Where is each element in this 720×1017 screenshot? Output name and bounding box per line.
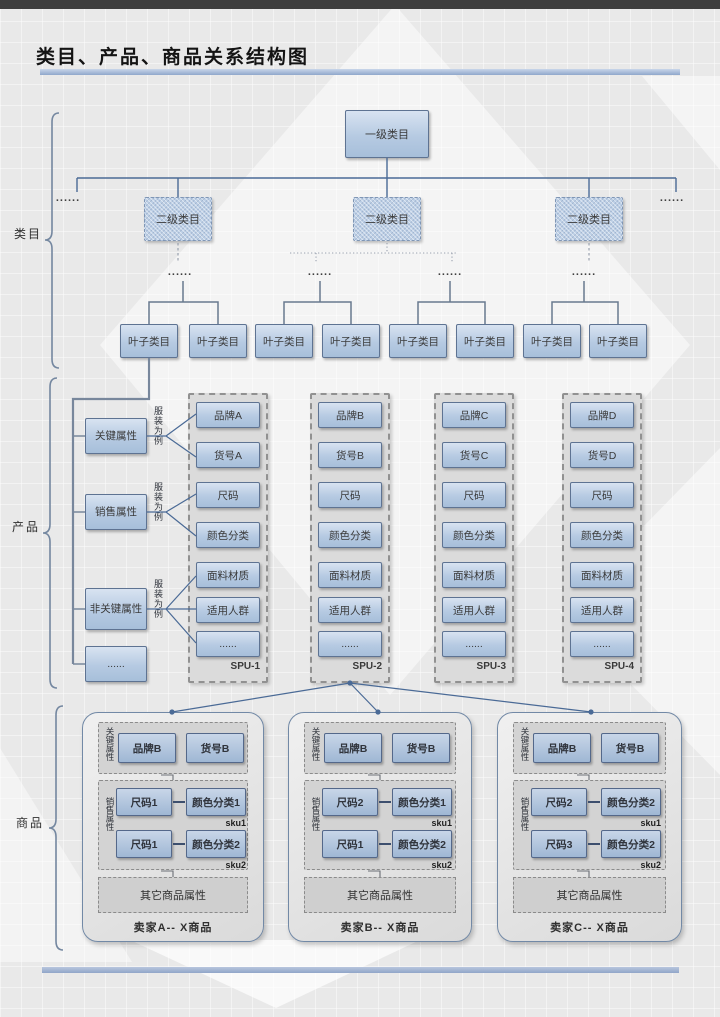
spu-attribute-box: 适用人群: [570, 597, 634, 623]
spu-name-label: SPU-3: [434, 661, 506, 672]
spu-attribute-box: ......: [318, 631, 382, 657]
spu-name-label: SPU-1: [188, 661, 260, 672]
seller-other-attrs-box: 其它商品属性: [98, 877, 248, 913]
leaf-category-box: 叶子类目: [456, 324, 514, 358]
bottom-bar: [42, 967, 679, 973]
leaf-category-box: 叶子类目: [389, 324, 447, 358]
spu-attribute-box: 货号D: [570, 442, 634, 468]
level2-category-box: 二级类目: [555, 197, 623, 241]
sku-color-box: 颜色分类2: [601, 788, 661, 816]
spu-name-label: SPU-2: [310, 661, 382, 672]
seller-sales-attrs-label: 销售属性: [308, 797, 320, 853]
seller-name-label: 卖家C-- X商品: [497, 919, 682, 935]
spu-attribute-box: 适用人群: [442, 597, 506, 623]
spu-attribute-box: 面料材质: [196, 562, 260, 588]
sku-size-box: 尺码3: [531, 830, 587, 858]
ellipsis-label: ......: [650, 192, 694, 204]
spu-attribute-box: ......: [442, 631, 506, 657]
sku-color-box: 颜色分类1: [392, 788, 452, 816]
spu-attribute-box: 货号C: [442, 442, 506, 468]
key-attributes-box: 关键属性: [85, 418, 147, 454]
item-number-box: 货号B: [186, 733, 244, 763]
sku-size-box: 尺码1: [116, 830, 172, 858]
seller-sales-attrs-label: 销售属性: [102, 797, 114, 853]
leaf-category-box: 叶子类目: [589, 324, 647, 358]
section-label-commodity: 商品: [16, 814, 44, 831]
sku-tag: sku2: [182, 860, 246, 870]
sku-tag: sku2: [597, 860, 661, 870]
sku-tag: sku1: [388, 818, 452, 828]
sku-link-dash: [588, 801, 600, 803]
top-bar: [0, 0, 720, 9]
leaf-category-box: 叶子类目: [523, 324, 581, 358]
spu-attribute-box: 适用人群: [318, 597, 382, 623]
section-label-catalog: 类目: [14, 225, 42, 242]
nonkey-attributes-box: 非关键属性: [85, 588, 147, 630]
ellipsis-label: ......: [428, 266, 472, 278]
seller-key-attrs-label: 关键属性: [517, 727, 529, 771]
spu-attribute-box: 颜色分类: [196, 522, 260, 548]
ellipsis-label: ......: [298, 266, 342, 278]
sku-link-dash: [379, 843, 391, 845]
spu-attribute-box: 品牌B: [318, 402, 382, 428]
spu-attribute-box: 尺码: [196, 482, 260, 508]
spu-attribute-box: 面料材质: [318, 562, 382, 588]
seller-sales-attrs-label: 销售属性: [517, 797, 529, 853]
leaf-category-box: 叶子类目: [322, 324, 380, 358]
sku-color-box: 颜色分类2: [186, 830, 246, 858]
sku-color-box: 颜色分类2: [392, 830, 452, 858]
brand-box: 品牌B: [118, 733, 176, 763]
spu-attribute-box: 货号B: [318, 442, 382, 468]
level2-category-box: 二级类目: [353, 197, 421, 241]
seller-name-label: 卖家A-- X商品: [82, 919, 264, 935]
brand-box: 品牌B: [533, 733, 591, 763]
spu-attribute-box: 颜色分类: [570, 522, 634, 548]
sku-link-dash: [173, 801, 185, 803]
diagram-canvas: 类目、产品、商品关系结构图 类目 产品 商品 一级类目 二级类目 二级类目 二级…: [0, 0, 720, 1017]
sku-size-box: 尺码1: [322, 830, 378, 858]
spu-attribute-box: 尺码: [570, 482, 634, 508]
seller-name-label: 卖家B-- X商品: [288, 919, 472, 935]
sku-link-dash: [173, 843, 185, 845]
spu-attribute-box: 尺码: [318, 482, 382, 508]
seller-key-attrs-label: 关键属性: [102, 727, 114, 771]
diagram-title: 类目、产品、商品关系结构图: [36, 42, 309, 69]
sales-attributes-box: 销售属性: [85, 494, 147, 530]
section-label-product: 产品: [12, 518, 40, 535]
sku-size-box: 尺码2: [531, 788, 587, 816]
seller-other-attrs-box: 其它商品属性: [304, 877, 456, 913]
item-number-box: 货号B: [392, 733, 450, 763]
ellipsis-label: ......: [562, 266, 606, 278]
more-attributes-box: ......: [85, 646, 147, 682]
spu-attribute-box: 品牌D: [570, 402, 634, 428]
spu-name-label: SPU-4: [562, 661, 634, 672]
spu-attribute-box: 尺码: [442, 482, 506, 508]
spu-attribute-box: 面料材质: [570, 562, 634, 588]
brand-box: 品牌B: [324, 733, 382, 763]
title-underline: [40, 69, 680, 75]
spu-attribute-box: ......: [196, 631, 260, 657]
leaf-category-box: 叶子类目: [255, 324, 313, 358]
clothing-example-note: 服装为例: [149, 482, 163, 544]
leaf-category-box: 叶子类目: [120, 324, 178, 358]
spu-attribute-box: 货号A: [196, 442, 260, 468]
item-number-box: 货号B: [601, 733, 659, 763]
level2-category-box: 二级类目: [144, 197, 212, 241]
ellipsis-label: ......: [46, 192, 90, 204]
clothing-example-note: 服装为例: [149, 406, 163, 468]
seller-other-attrs-box: 其它商品属性: [513, 877, 666, 913]
sku-size-box: 尺码1: [116, 788, 172, 816]
leaf-category-box: 叶子类目: [189, 324, 247, 358]
seller-key-attrs-label: 关键属性: [308, 727, 320, 771]
spu-attribute-box: 颜色分类: [318, 522, 382, 548]
spu-attribute-box: 品牌A: [196, 402, 260, 428]
sku-link-dash: [588, 843, 600, 845]
spu-attribute-box: 面料材质: [442, 562, 506, 588]
spu-attribute-box: 品牌C: [442, 402, 506, 428]
ellipsis-label: ......: [158, 266, 202, 278]
root-category-box: 一级类目: [345, 110, 429, 158]
sku-link-dash: [379, 801, 391, 803]
spu-attribute-box: 适用人群: [196, 597, 260, 623]
sku-color-box: 颜色分类1: [186, 788, 246, 816]
spu-attribute-box: ......: [570, 631, 634, 657]
sku-tag: sku1: [597, 818, 661, 828]
sku-tag: sku2: [388, 860, 452, 870]
clothing-example-note: 服装为例: [149, 579, 163, 641]
sku-tag: sku1: [182, 818, 246, 828]
spu-attribute-box: 颜色分类: [442, 522, 506, 548]
sku-color-box: 颜色分类2: [601, 830, 661, 858]
sku-size-box: 尺码2: [322, 788, 378, 816]
